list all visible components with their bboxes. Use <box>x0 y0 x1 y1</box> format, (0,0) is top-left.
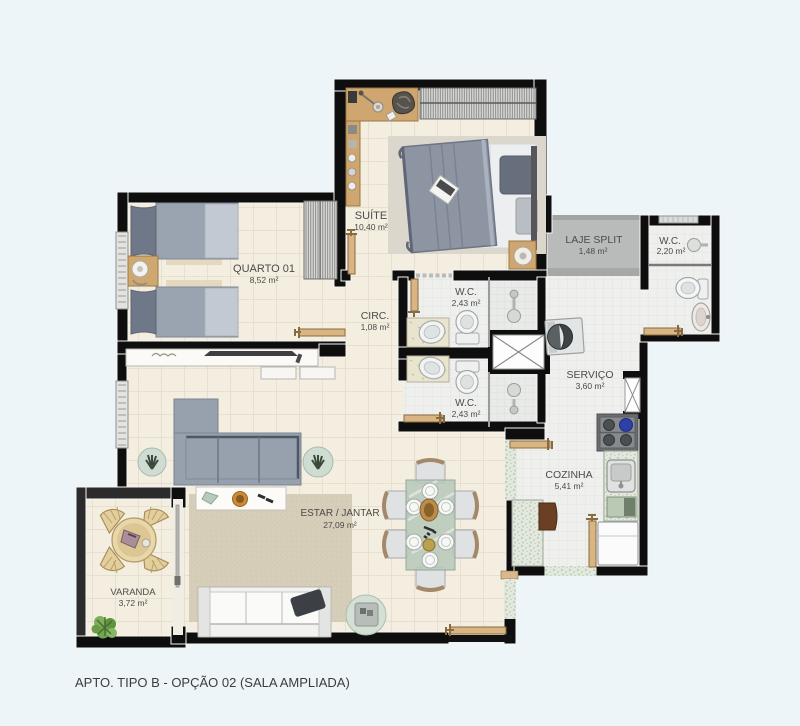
svg-text:8,52 m²: 8,52 m² <box>250 275 279 285</box>
svg-text:CIRC.: CIRC. <box>361 310 390 322</box>
svg-text:1,08 m²: 1,08 m² <box>361 322 390 332</box>
svg-text:2,43 m²: 2,43 m² <box>452 298 481 308</box>
svg-text:LAJE SPLIT: LAJE SPLIT <box>565 234 623 246</box>
svg-text:VARANDA: VARANDA <box>110 587 156 598</box>
svg-text:APTO. TIPO B - OPÇÃO 02 (SALA: APTO. TIPO B - OPÇÃO 02 (SALA AMPLIADA) <box>75 675 350 690</box>
svg-text:COZINHA: COZINHA <box>545 469 592 481</box>
svg-text:1,48 m²: 1,48 m² <box>579 246 608 256</box>
svg-text:2,43 m²: 2,43 m² <box>452 409 481 419</box>
svg-text:3,72 m²: 3,72 m² <box>119 598 148 608</box>
svg-text:W.C.: W.C. <box>455 287 477 298</box>
svg-text:27,09 m²: 27,09 m² <box>323 520 357 530</box>
svg-text:SERVIÇO: SERVIÇO <box>566 369 613 381</box>
svg-text:2,20 m²: 2,20 m² <box>657 246 686 256</box>
svg-text:ESTAR / JANTAR: ESTAR / JANTAR <box>300 508 379 519</box>
svg-text:5,41 m²: 5,41 m² <box>555 481 584 491</box>
svg-text:10,40 m²: 10,40 m² <box>354 222 388 232</box>
svg-text:QUARTO 01: QUARTO 01 <box>233 263 295 275</box>
svg-text:W.C.: W.C. <box>455 398 477 409</box>
svg-text:3,60 m²: 3,60 m² <box>576 381 605 391</box>
svg-text:SUÍTE: SUÍTE <box>355 209 387 222</box>
